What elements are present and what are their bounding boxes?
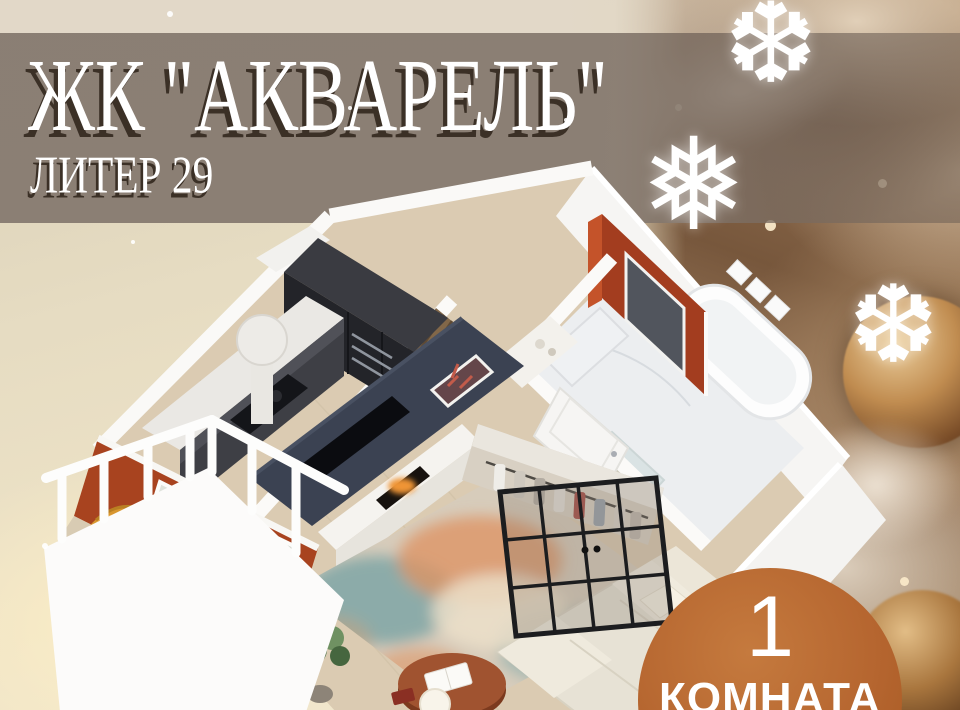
rooms-badge: 1 КОМНАТА bbox=[638, 568, 902, 710]
snowflake-icon: ❆ bbox=[724, 0, 818, 100]
sparkle-dot bbox=[167, 11, 173, 17]
promo-poster: ЖК "АКВАРЕЛЬ" ЛИТЕР 29 bbox=[0, 0, 960, 710]
snowflake-icon: ❅ bbox=[640, 122, 747, 250]
sparkle-dot bbox=[42, 543, 48, 549]
sparkle-dot bbox=[348, 106, 352, 110]
flocked-branch bbox=[783, 409, 960, 561]
rooms-count: 1 bbox=[638, 584, 902, 670]
rooms-label: КОМНАТА bbox=[638, 674, 902, 710]
sparkle-dot bbox=[131, 240, 135, 244]
building-subtitle: ЛИТЕР 29 bbox=[30, 149, 213, 202]
sparkle-dot bbox=[564, 118, 568, 122]
complex-title: ЖК "АКВАРЕЛЬ" bbox=[28, 45, 608, 149]
snowflake-icon: ❆ bbox=[848, 272, 939, 380]
